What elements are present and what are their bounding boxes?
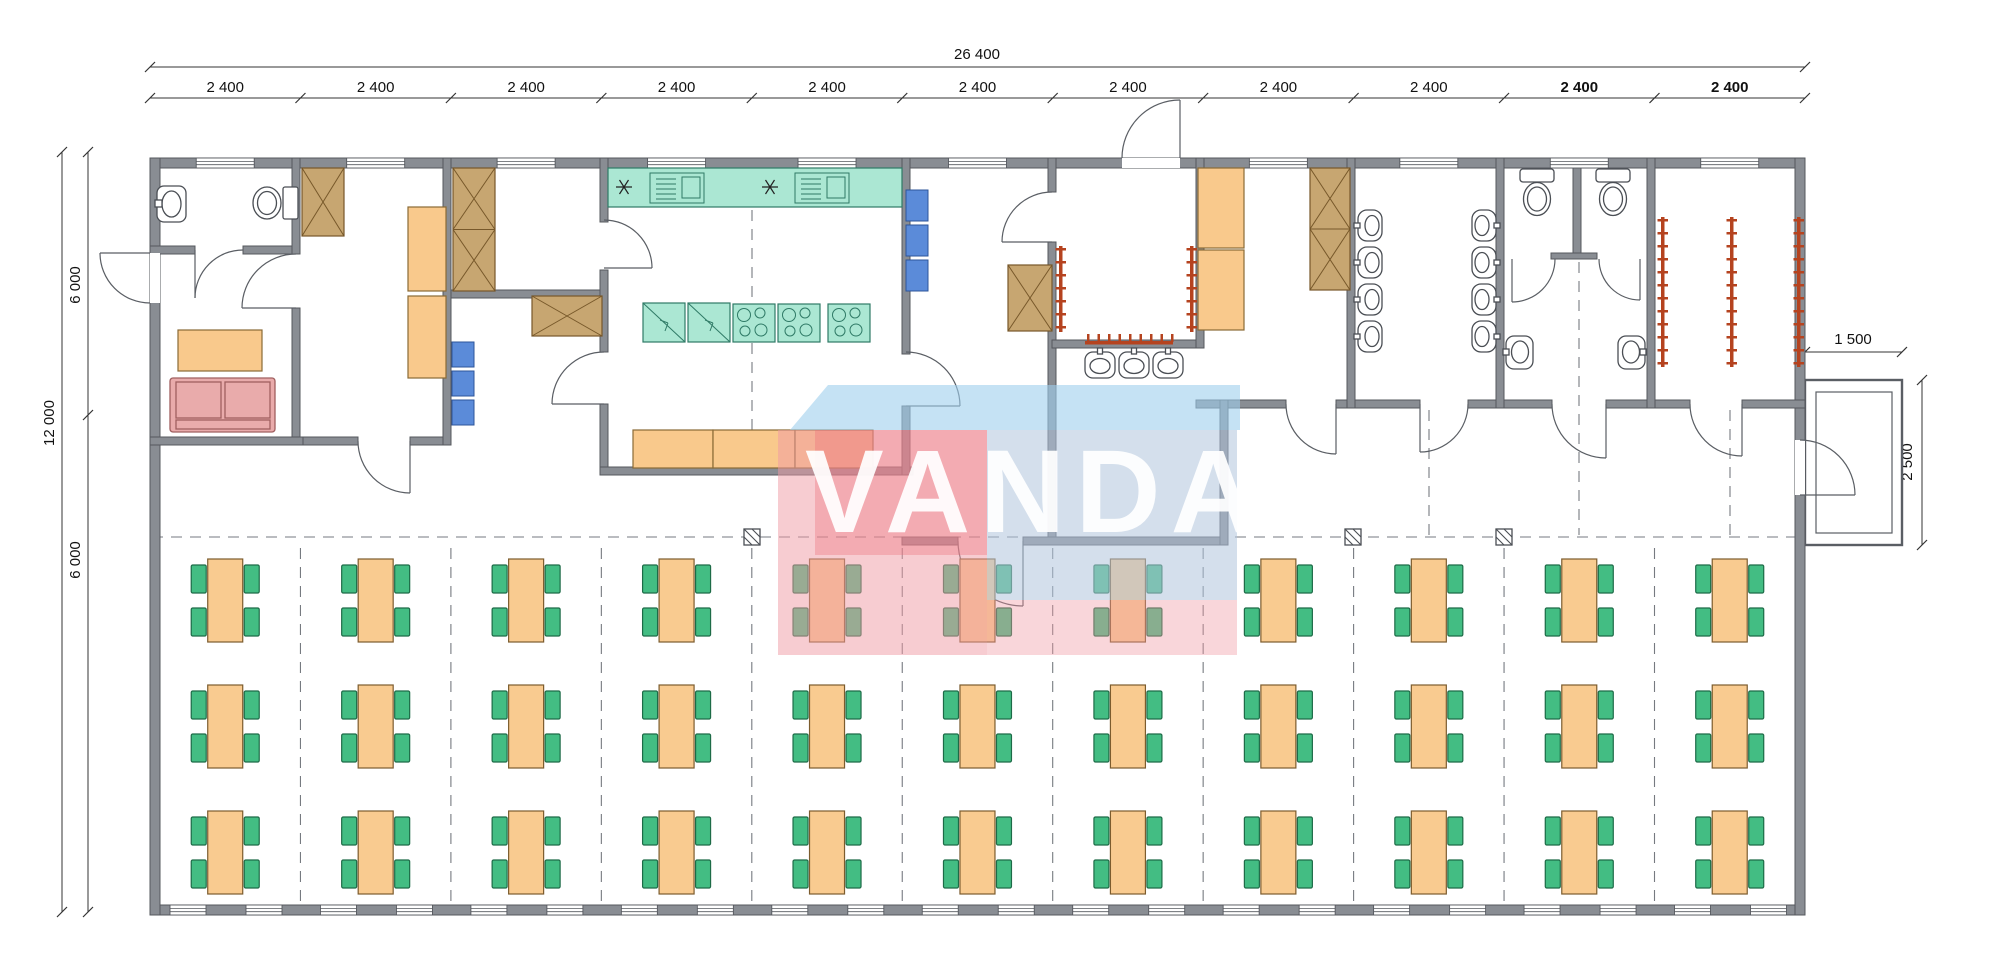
wardrobe (532, 296, 602, 336)
urinals (1354, 210, 1500, 352)
window (1450, 905, 1486, 915)
urinal (1354, 210, 1382, 241)
window (396, 905, 432, 915)
window (347, 158, 405, 168)
dining-table-set (492, 811, 560, 894)
kitchen-counter (608, 168, 902, 207)
dining-table-set (793, 559, 861, 642)
furniture (155, 168, 1804, 545)
wash-basin (155, 186, 186, 222)
dining-table-set (1545, 685, 1613, 768)
double-wardrobe (453, 168, 495, 291)
floor-plan-drawing: 26 400 2 4002 4002 4002 4002 4002 4002 4… (0, 0, 2000, 975)
toilet (1520, 169, 1554, 216)
window (1400, 158, 1458, 168)
dim-bay-width: 2 400 (959, 79, 997, 96)
window (621, 905, 657, 915)
dim-overall-width: 26 400 (954, 46, 1000, 63)
lounge-table (178, 330, 262, 371)
dim-bay-width: 2 400 (1410, 79, 1448, 96)
wardrobe (1008, 265, 1052, 331)
dining-table-set (793, 811, 861, 894)
hall-wash-basins (1085, 348, 1183, 378)
window (848, 905, 884, 915)
dim-bay-width: 2 400 (507, 79, 545, 96)
urinal (1354, 321, 1382, 352)
window (497, 158, 555, 168)
window (1600, 905, 1636, 915)
window (1675, 905, 1711, 915)
urinal (1354, 284, 1382, 315)
dining-table-set (643, 811, 711, 894)
window (948, 158, 1006, 168)
window (1073, 905, 1109, 915)
dining-table-set (492, 685, 560, 768)
window (1550, 158, 1608, 168)
cabinet (408, 296, 446, 378)
tall-cabinet (1198, 168, 1244, 248)
shelf-boxes (906, 190, 928, 291)
dim-lower-zone: 6 000 (67, 541, 84, 579)
window (922, 905, 958, 915)
kitchen-island (643, 303, 870, 342)
window (246, 905, 282, 915)
cabinet (408, 207, 446, 291)
grid-lines (152, 172, 1803, 902)
dining-table-set (643, 559, 711, 642)
cooktop (828, 304, 870, 342)
dining-table-set (1244, 559, 1312, 642)
cooktop (778, 304, 820, 342)
window (1751, 905, 1787, 915)
window (1299, 905, 1335, 915)
toilet (253, 187, 298, 219)
drying-rack (1056, 246, 1067, 332)
urinal (1354, 247, 1382, 278)
dining-table-set (943, 685, 1011, 768)
dining-table-set (1545, 811, 1613, 894)
dining-table-set (492, 559, 560, 642)
sofa (170, 378, 275, 432)
wash-basin (1153, 348, 1183, 378)
window (697, 905, 733, 915)
wash-basin (1085, 348, 1115, 378)
window (1223, 905, 1259, 915)
fridge (688, 303, 730, 342)
dim-bay-width: 2 400 (206, 79, 244, 96)
column-marker (1345, 529, 1361, 545)
double-wardrobe (1310, 168, 1350, 290)
dining-table-set (943, 559, 1011, 642)
window (798, 158, 856, 168)
fridge (643, 303, 685, 342)
dining-table-set (1545, 559, 1613, 642)
wash-basin (1618, 336, 1646, 369)
wash-basin (1119, 348, 1149, 378)
dim-upper-zone: 6 000 (67, 266, 84, 304)
dining-table-set (191, 811, 259, 894)
shelf-boxes (452, 342, 474, 425)
dining-table-set (342, 685, 410, 768)
dim-overall-height: 12 000 (41, 400, 58, 446)
window (1249, 158, 1307, 168)
drying-rack (1187, 246, 1198, 332)
dining-table-set (1094, 559, 1162, 642)
dim-bay-width: 2 400 (1260, 79, 1298, 96)
window (196, 158, 254, 168)
entrance-porch (1805, 380, 1902, 545)
dining-table-set (1094, 811, 1162, 894)
window (1149, 905, 1185, 915)
window (471, 905, 507, 915)
dining-table-set (342, 811, 410, 894)
dining-table-set (1395, 559, 1463, 642)
dining-table-set (643, 685, 711, 768)
coat-hooks (1085, 334, 1174, 345)
column-marker (744, 529, 760, 545)
dining-area (191, 559, 1764, 894)
window (648, 158, 706, 168)
wardrobe (302, 168, 344, 236)
drying-rack (1727, 217, 1738, 367)
dim-bay-width: 2 400 (357, 79, 395, 96)
drying-rack (1658, 217, 1669, 367)
window (170, 905, 206, 915)
dining-table-set (1395, 811, 1463, 894)
dining-table-set (342, 559, 410, 642)
dim-bay-width: 2 400 (1109, 79, 1147, 96)
dim-bay-width: 2 400 (658, 79, 696, 96)
dim-bay-width: 2 400 (808, 79, 846, 96)
dim-bay-width: 2 400 (1561, 79, 1599, 96)
dining-table-set (943, 811, 1011, 894)
dining-table-set (1244, 811, 1312, 894)
dim-bay-width: 2 400 (1711, 79, 1749, 96)
dining-table-set (1696, 685, 1764, 768)
dining-table-set (793, 685, 861, 768)
window (320, 905, 356, 915)
wash-basin (1503, 336, 1533, 369)
window (772, 905, 808, 915)
coat-racks (1056, 217, 1805, 367)
dining-table-set (1244, 685, 1312, 768)
window (547, 905, 583, 915)
window (1524, 905, 1560, 915)
window (1374, 905, 1410, 915)
window (998, 905, 1034, 915)
cooktop (733, 304, 775, 342)
serving-counter (633, 430, 873, 468)
dining-table-set (1094, 685, 1162, 768)
tall-cabinet (1198, 250, 1244, 330)
window (1701, 158, 1759, 168)
dining-table-set (1395, 685, 1463, 768)
toilet (1596, 169, 1630, 216)
floor-plan-canvas: 26 400 2 4002 4002 4002 4002 4002 4002 4… (0, 0, 2000, 975)
dim-porch-depth: 1 500 (1834, 331, 1872, 348)
dining-table-set (1696, 811, 1764, 894)
dining-table-set (191, 559, 259, 642)
dining-table-set (191, 685, 259, 768)
column-marker (1496, 529, 1512, 545)
dining-table-set (1696, 559, 1764, 642)
